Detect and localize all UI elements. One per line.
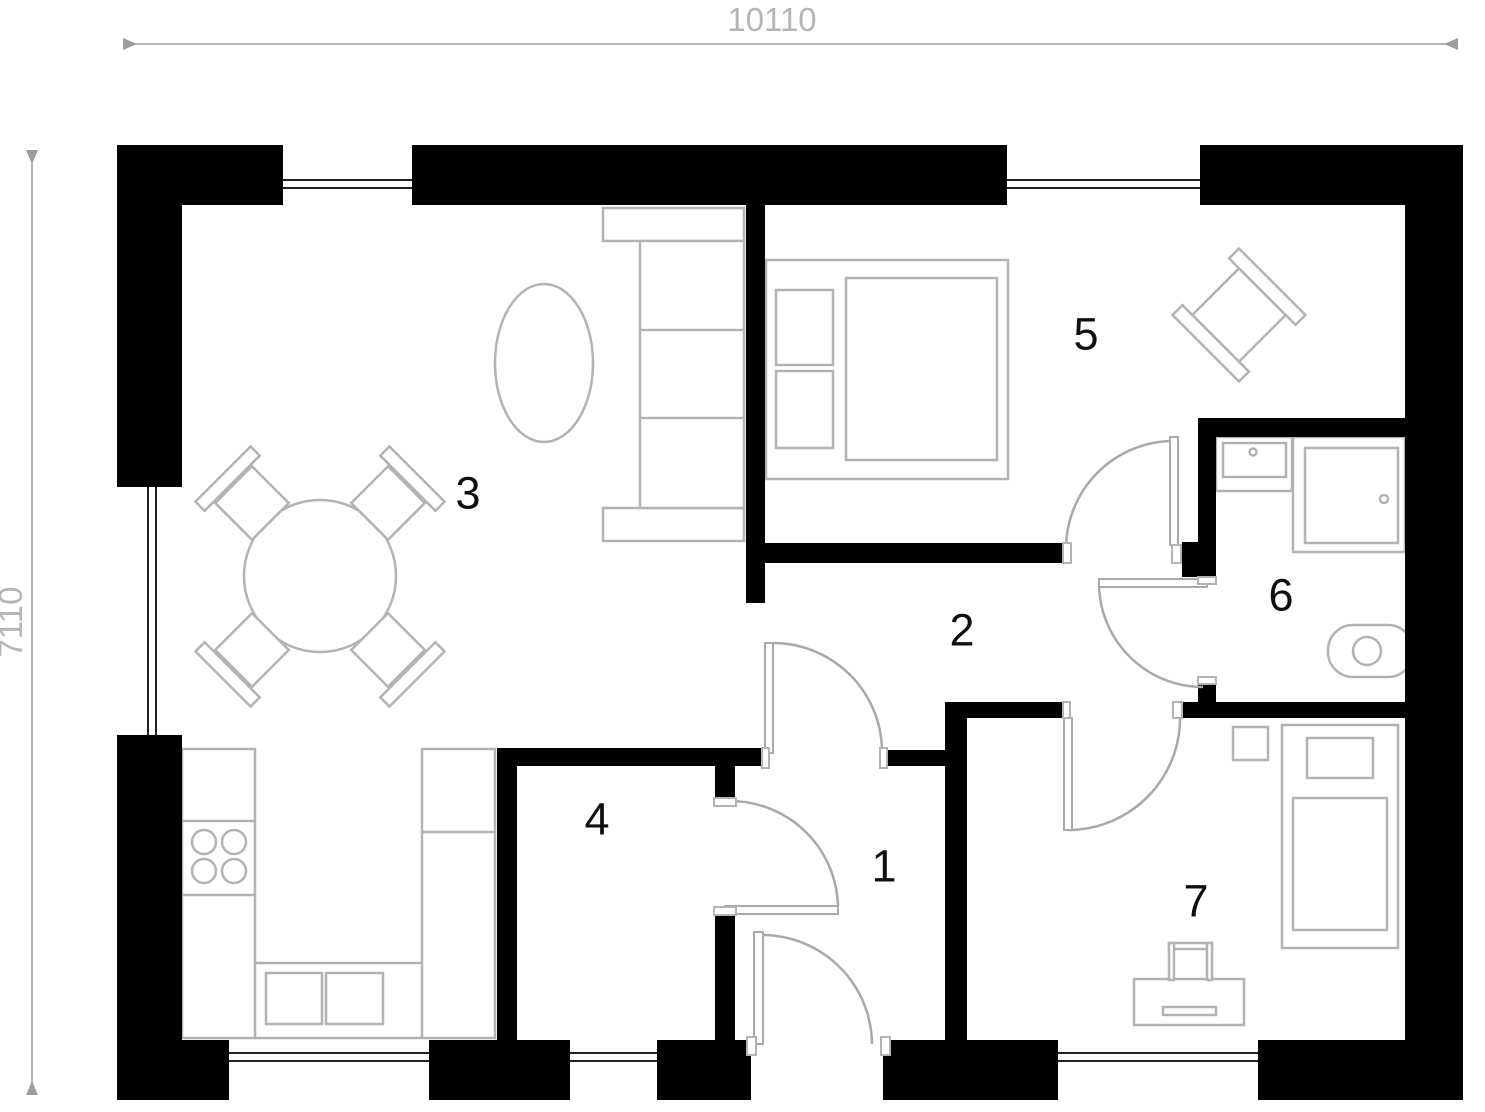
kitchen-counter-right xyxy=(422,749,495,1038)
shower xyxy=(1293,437,1405,552)
single-bed xyxy=(1282,725,1398,948)
double-bed xyxy=(766,260,1008,479)
kitchen-counter-left xyxy=(182,749,255,1038)
window-room7-bottom xyxy=(1058,1053,1258,1061)
sofa xyxy=(603,208,744,541)
window-bedroom5-top xyxy=(1007,180,1200,188)
room-label-3: 3 xyxy=(455,468,480,519)
toilet xyxy=(1328,625,1413,677)
floor-plan-page: 1234567101107110 xyxy=(0,0,1485,1112)
room-label-6: 6 xyxy=(1268,570,1293,621)
door-room7 xyxy=(1063,702,1182,830)
kitchen-counter-bottom xyxy=(255,963,422,1038)
window-living-left xyxy=(148,487,156,735)
dimension-top: 10110 xyxy=(123,1,1458,50)
armchair-bedroom5 xyxy=(1173,249,1306,382)
desk xyxy=(1134,979,1244,1025)
door-entrance xyxy=(747,932,890,1055)
dimension-top-label: 10110 xyxy=(727,1,816,38)
window-living-top xyxy=(283,180,412,188)
room-label-4: 4 xyxy=(584,794,609,845)
room-label-1: 1 xyxy=(871,841,896,892)
room-label-2: 2 xyxy=(949,605,974,656)
window-kitchen-bottom xyxy=(229,1053,429,1061)
door-bathroom6 xyxy=(1099,577,1216,687)
floor-plan: 1234567101107110 xyxy=(0,0,1485,1112)
dimension-left: 7110 xyxy=(0,150,38,1095)
room-label-7: 7 xyxy=(1183,876,1208,927)
window-room4-bottom xyxy=(570,1053,657,1061)
nightstand-room7 xyxy=(1233,727,1268,760)
rug-oval xyxy=(495,284,593,442)
dimension-left-label: 7110 xyxy=(0,587,29,658)
desk-chair xyxy=(1169,943,1212,980)
door-hall-to-room1 xyxy=(762,643,887,768)
room-label-5: 5 xyxy=(1073,309,1098,360)
sink xyxy=(1216,437,1292,491)
floor-plan-canvas: 1234567101107110 xyxy=(0,0,1485,1112)
door-room4 xyxy=(714,798,838,915)
door-bedroom5 xyxy=(1063,437,1181,563)
